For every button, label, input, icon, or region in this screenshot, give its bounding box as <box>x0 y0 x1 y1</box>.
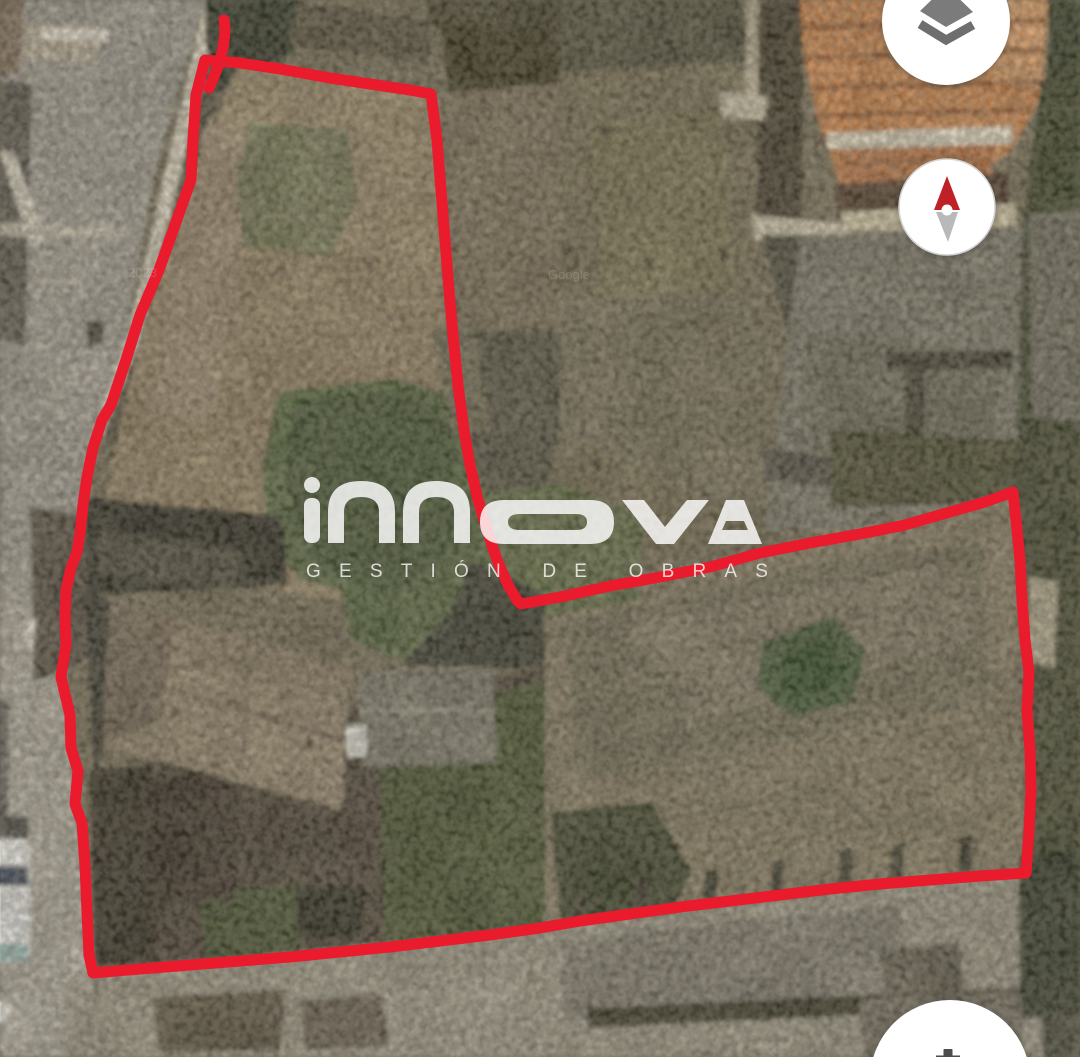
svg-text:2023: 2023 <box>128 265 157 280</box>
svg-text:Google: Google <box>548 267 590 282</box>
svg-text:GESTIÓN DE OBRAS: GESTIÓN DE OBRAS <box>306 560 786 582</box>
